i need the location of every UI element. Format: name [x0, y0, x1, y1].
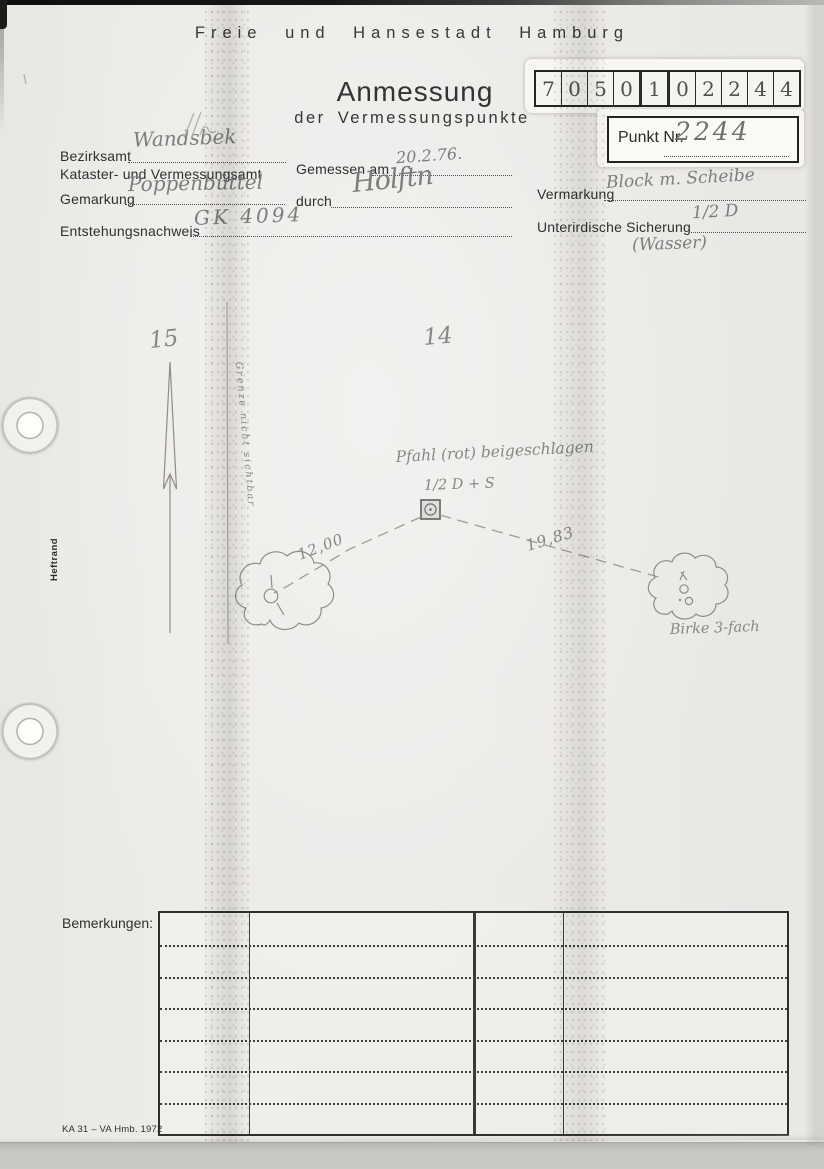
- parcel-number-left: 15: [148, 325, 180, 354]
- parcel-number-right: 14: [422, 323, 453, 351]
- survey-point-symbol: [421, 500, 440, 519]
- scan-edge-smudge: [0, 29, 4, 134]
- marker-type-note: 1/2 D + S: [424, 476, 495, 494]
- right-tree-symbol: [648, 553, 728, 619]
- left-tree-symbol: [236, 551, 334, 629]
- distance-right: 19,83: [524, 523, 576, 555]
- scan-background-band: [0, 1142, 824, 1169]
- boundary-line: [227, 302, 228, 644]
- scanned-survey-form: Freie und Hansestadt Hamburg Anmessung d…: [0, 0, 824, 1169]
- table-row-line: [160, 977, 787, 979]
- scan-corner-artifact: [0, 0, 7, 29]
- hole-punch-top: [0, 396, 62, 460]
- scan-top-edge: [0, 0, 824, 5]
- table-row-line: [160, 945, 787, 947]
- form-code: KA 31 – VA Hmb. 1972: [62, 1124, 162, 1135]
- margin-label-heftrand: Heftrand: [49, 538, 60, 581]
- table-row-line: [160, 1103, 787, 1105]
- remarks-label: Bemerkungen:: [62, 915, 153, 931]
- table-row-line: [160, 1008, 787, 1010]
- tree-label: Birke 3-fach: [669, 619, 760, 638]
- measurement-line-left: [274, 517, 421, 593]
- pencil-scribble: [24, 74, 216, 139]
- north-arrow: [164, 362, 177, 633]
- table-row-line: [160, 1040, 787, 1042]
- table-row-line: [160, 1071, 787, 1073]
- scan-right-edge-shadow: [804, 0, 824, 1145]
- hole-punch-bottom: [0, 702, 62, 766]
- marker-note: Pfahl (rot) beigeschlagen: [394, 438, 594, 466]
- distance-left: 12,00: [295, 530, 346, 564]
- boundary-note: Grenze nicht sichtbar: [233, 361, 257, 508]
- remarks-table: [158, 911, 789, 1136]
